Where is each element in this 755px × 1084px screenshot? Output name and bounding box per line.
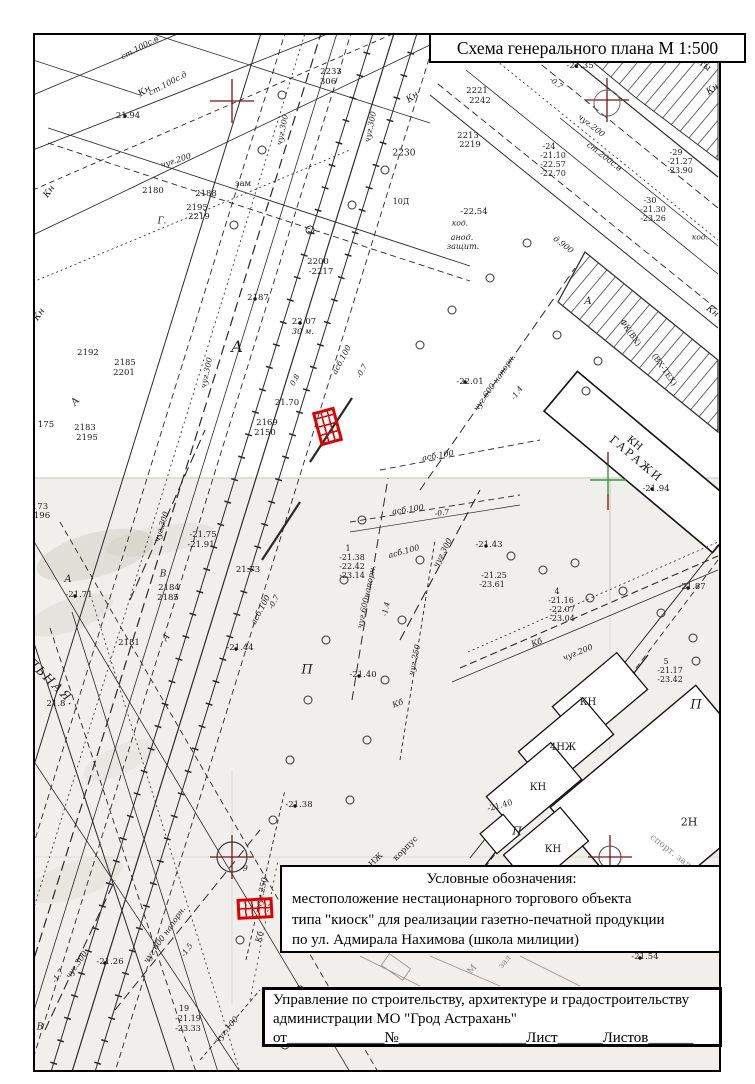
map-annotation: -21.30: [640, 206, 666, 214]
map-annotation: -23.61: [479, 581, 505, 589]
map-annotation: -22.70: [540, 170, 566, 178]
map-annotation: Кб: [530, 637, 543, 648]
map-annotation: -29: [670, 149, 683, 157]
map-annotation: ст.200с.в: [585, 141, 623, 173]
map-annotation: зал: [497, 954, 512, 970]
map-annotation: 2219: [188, 213, 210, 222]
map-annotation: корпус: [392, 835, 420, 863]
map-annotation: чуг.200: [562, 643, 594, 662]
map-annotation: 2200: [307, 258, 329, 267]
map-annotation: 2242: [469, 97, 491, 106]
map-annotation: 2169: [256, 419, 278, 428]
map-annotation: 2150: [254, 429, 276, 438]
map-annotation: 21.8: [47, 700, 66, 709]
map-annotation: 2201: [113, 369, 135, 378]
map-annotation: ФК(ВХ): [618, 318, 642, 348]
map-annotation: -1.4: [510, 385, 524, 401]
map-annotation: д.900: [552, 235, 575, 255]
map-annotation: -22.01: [456, 378, 483, 387]
map-annotation: -21.94: [642, 485, 669, 494]
map-annotation: П: [690, 699, 701, 712]
map-annotation: асб.100: [331, 344, 353, 376]
legend-line: местоположение нестационарного торгового…: [292, 889, 711, 909]
legend-box: Условные обозначения: местоположение нес…: [280, 865, 721, 953]
map-annotation: -21.54: [631, 953, 658, 962]
map-annotation: 2184: [158, 584, 180, 593]
map-annotation: -1.4: [381, 601, 391, 617]
map-annotation: чуг.300: [432, 537, 454, 569]
map-annotation: -21.75: [189, 531, 216, 540]
map-annotation: -21.43: [475, 541, 502, 550]
map-annotation: А: [64, 575, 72, 585]
map-annotation: -21.26: [96, 958, 123, 967]
map-annotation: -21.16: [548, 597, 574, 605]
map-annotation: 2233: [320, 68, 342, 77]
map-annotation: -21.19: [175, 1015, 201, 1023]
map-annotation: 2181: [118, 639, 140, 648]
page: { "title_box": { "text": "Схема генераль…: [0, 0, 755, 1084]
map-annotation: КН: [545, 845, 561, 855]
map-annotation: 2185: [114, 359, 136, 368]
map-annotation: -21.38: [339, 554, 365, 562]
map-annotation: ст.100с.в: [120, 35, 160, 62]
map-annotation: -23.14: [339, 572, 365, 580]
map-annotation: -21.38: [285, 801, 312, 810]
map-annotation: -21.40: [349, 671, 376, 680]
map-annotation: 4НЖ: [550, 743, 576, 753]
map-annotation: код.: [452, 219, 468, 227]
map-annotation: чуг.300: [200, 357, 214, 389]
map-annotation: -21.25: [481, 572, 507, 580]
map-annotation: -1.7: [51, 968, 65, 984]
map-annotation: П: [301, 664, 312, 677]
map-annotation: 2221: [466, 87, 488, 96]
map-annotation: 2183: [74, 424, 96, 433]
stamp-line: Управление по строительству, архитектуре…: [273, 991, 711, 1010]
map-annotation: -23.33: [175, 1025, 201, 1033]
map-annotation: 5: [663, 658, 668, 666]
map-annotation: -21.91: [187, 541, 214, 550]
map-annotation: асб.100: [422, 449, 455, 462]
plan-title: Схема генерального плана М 1:500: [457, 38, 718, 59]
map-annotation: -23.04: [549, 615, 575, 623]
map-annotation: -24: [543, 143, 556, 151]
map-annotation: -21.27: [667, 158, 693, 166]
map-annotation: 10Д: [393, 198, 410, 206]
map-annotation: -21.40: [487, 799, 514, 813]
map-annotation: 21.70: [275, 399, 299, 408]
stamp-line: от_____________№_________________Лист___…: [273, 1029, 711, 1048]
map-annotation: -2217: [309, 268, 334, 277]
map-annotation: -23.42: [657, 676, 683, 684]
map-annotation: 196: [34, 512, 50, 521]
map-annotation: 2185: [157, 594, 179, 603]
map-annotation: защит.: [447, 243, 479, 251]
map-annotation: 4: [554, 588, 559, 596]
map-annotation: -23.90: [667, 167, 693, 175]
map-annotation: А: [231, 339, 243, 355]
legend-line: типа "киоск" для реализации газетно-печа…: [292, 910, 711, 930]
map-annotation: КН: [530, 783, 546, 793]
map-annotation: М: [467, 964, 480, 977]
map-annotation: чуг.600 напорн.: [143, 905, 188, 964]
map-annotation: Кн: [43, 184, 58, 200]
map-annotation: зам: [235, 180, 251, 189]
map-annotation: чуг.200: [160, 152, 192, 169]
map-annotation: -21.87: [678, 583, 705, 592]
map-annotation: чуг.300: [276, 114, 290, 146]
map-annotation: 2187: [247, 294, 269, 303]
title-stamp-box: Управление по строительству, архитектуре…: [262, 987, 722, 1047]
map-annotation: -22.57: [540, 161, 566, 169]
map-annotation: код.: [692, 233, 708, 241]
map-annotation: Кн: [33, 307, 47, 323]
map-annotation: 2219: [459, 141, 481, 150]
map-annotation: 2Н: [681, 817, 698, 828]
map-annotation: 2195: [76, 434, 98, 443]
map-annotation: -21.44: [226, 644, 253, 653]
map-annotation: -23.26: [640, 215, 666, 223]
map-annotation: ст.100с.д: [148, 71, 189, 98]
map-annotation: Кн: [705, 83, 721, 98]
map-annotation: 175: [38, 421, 54, 430]
map-annotation: Г.: [158, 218, 167, 227]
map-annotation: 1: [345, 545, 350, 553]
map-annotation: -0.7: [355, 363, 368, 379]
map-annotation: чуг.250: [408, 644, 422, 676]
map-annotation: 21.94: [116, 112, 140, 121]
map-annotation: -0.7: [434, 508, 449, 517]
legend-heading: Условные обозначения:: [292, 869, 711, 889]
map-annotation: чуг.100: [214, 1015, 240, 1044]
map-annotation: 21.73: [236, 566, 260, 575]
map-annotation: -30: [644, 197, 657, 205]
map-annotation: -21.71: [65, 591, 92, 600]
map-annotation: -22.54: [460, 208, 487, 217]
map-annotation: анод.: [451, 234, 473, 242]
map-annotation: чуг.300: [364, 111, 378, 143]
map-annotation: 19: [179, 1005, 189, 1013]
map-annotation: 2180: [142, 187, 164, 196]
map-annotation: 2230: [393, 150, 416, 159]
map-annotation: А: [584, 297, 592, 307]
map-annotation: асб.100: [392, 504, 425, 516]
map-annotation: 306: [320, 78, 336, 87]
map-annotation: П: [512, 826, 522, 837]
map-annotation: чуг.300: [65, 950, 90, 980]
map-annotation: -21.17: [657, 667, 683, 675]
map-annotation: Кб: [391, 698, 404, 709]
map-annotation: В: [37, 1024, 44, 1033]
map-annotation: КН: [580, 698, 596, 708]
map-annotation: чуг.300: [153, 511, 170, 543]
map-annotation: -21.35: [566, 62, 593, 71]
map-annotation: (ВХ-ТЕХ): [650, 352, 678, 387]
map-annotation: -1.5: [180, 942, 194, 958]
map-annotation: 2188: [195, 190, 217, 199]
map-annotation: асб.100: [250, 594, 272, 626]
map-annotation: 22.07: [292, 318, 316, 327]
map-annotation: 30 м.: [292, 328, 314, 336]
map-annotation: -21.10: [540, 152, 566, 160]
map-annotation: -0.7: [548, 76, 564, 91]
legend-line: по ул. Адмирала Нахимова (школа милиции): [292, 930, 711, 950]
map-annotation: Кн: [704, 304, 720, 319]
map-annotation: В: [160, 571, 167, 580]
stamp-line: администрации МО "Грод Астрахань": [273, 1010, 711, 1029]
map-annotation: асб.100: [388, 544, 421, 560]
map-annotation: -22.07: [549, 606, 575, 614]
map-annotation: 0.8: [289, 373, 301, 387]
map-annotation: 2192: [77, 349, 99, 358]
map-annotation: А: [70, 396, 83, 408]
plan-title-box: Схема генерального плана М 1:500: [429, 33, 746, 63]
map-annotation: А: [161, 632, 172, 643]
map-annotation: -22.42: [339, 563, 365, 571]
map-annotation: чуг.200: [576, 113, 606, 139]
map-annotation: Кн: [405, 91, 421, 106]
legend-kiosk-symbol: [236, 897, 273, 920]
map-annotation: Кб: [255, 931, 265, 943]
map-annotation: -9: [240, 865, 248, 873]
